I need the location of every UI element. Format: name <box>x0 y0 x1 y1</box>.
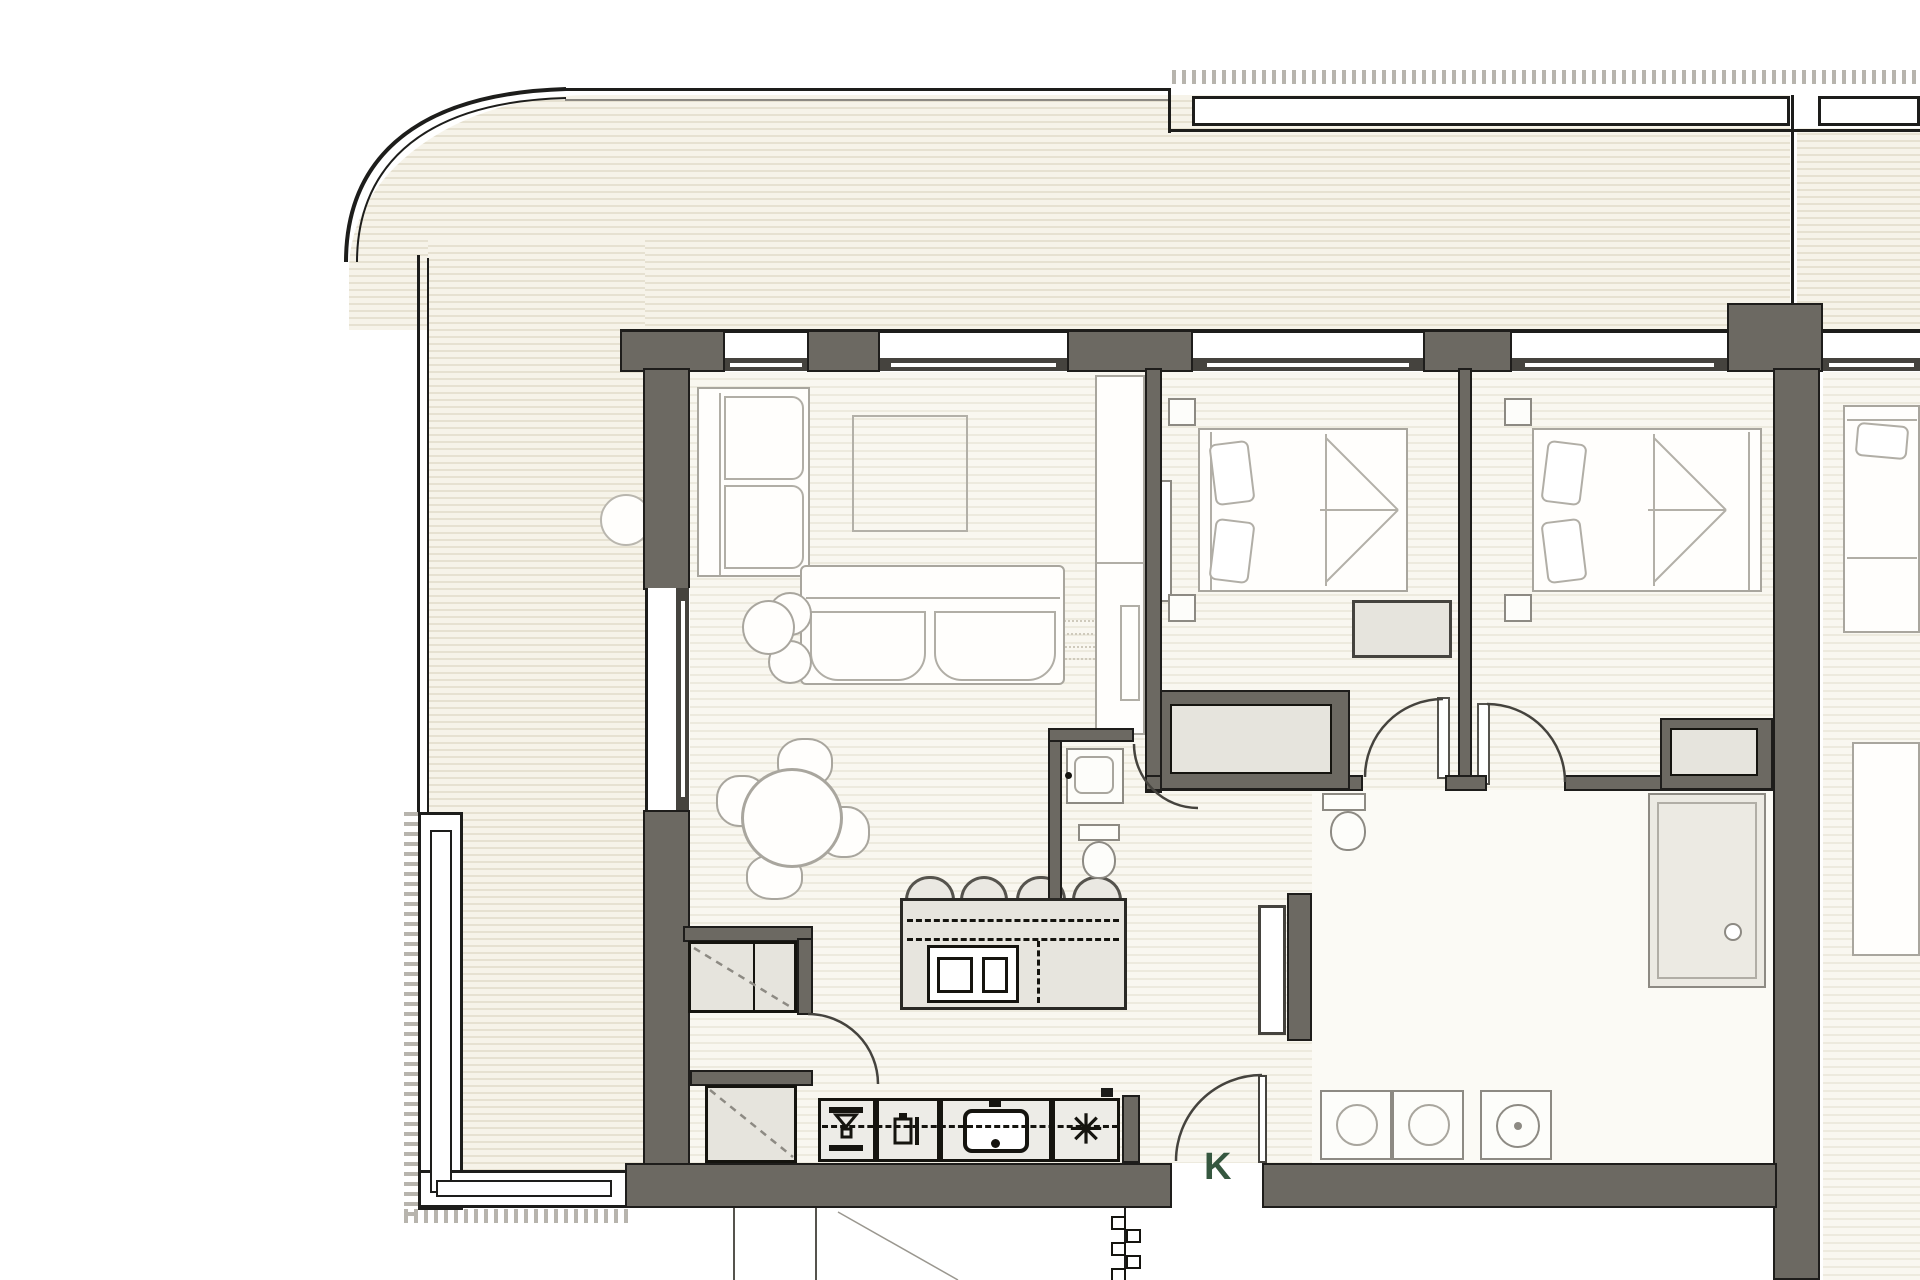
vanity-sink <box>1392 1090 1464 1160</box>
appliance-coffee-machine <box>818 1098 876 1162</box>
window-sill-line <box>681 601 685 796</box>
vanity-bowl <box>1336 1104 1378 1146</box>
railing-hatch-left <box>404 812 418 1222</box>
cabinet-panel <box>1120 605 1140 701</box>
washer-dot <box>1514 1122 1522 1130</box>
wall-pier-3 <box>1067 330 1193 372</box>
wall-pier-corner <box>620 330 725 372</box>
toilet2-tank <box>1322 793 1366 811</box>
balcony-divider <box>1791 95 1794 333</box>
railing-band-neighbor <box>1818 96 1920 126</box>
bottom-wall-right <box>1262 1163 1777 1208</box>
railing-panel-left-inner <box>430 830 452 1193</box>
window-1 <box>725 330 807 372</box>
wardrobe-bedroom1 <box>1160 690 1350 790</box>
nightstand <box>1168 594 1196 622</box>
vanity-sink <box>1320 1090 1392 1160</box>
neighbor-balcony-floor <box>1797 128 1920 330</box>
bottom-wall-left <box>625 1163 1172 1208</box>
neighbor-headboard <box>1847 419 1917 421</box>
window-sill-line <box>891 363 1056 367</box>
window-3 <box>1193 330 1423 372</box>
cooktop <box>927 945 1019 1003</box>
shower-tray <box>1657 802 1757 979</box>
island-dash-line <box>907 938 1119 941</box>
balcony-edge-line <box>1168 129 1920 132</box>
side-table <box>742 600 795 655</box>
wall-pier-4 <box>1423 330 1512 372</box>
toilet-tank <box>1078 824 1120 841</box>
section-marker-square <box>1111 1242 1126 1256</box>
unit-separation-wall <box>1773 368 1820 1280</box>
sofa-seat-cushion <box>934 611 1056 681</box>
loveseat-cushion <box>724 396 804 480</box>
door-leaf-bedroom2 <box>1477 703 1490 785</box>
sink-drain <box>991 1139 1000 1148</box>
window-2 <box>880 330 1067 372</box>
living-rug <box>852 415 968 532</box>
wall-between-bedrooms <box>1458 368 1472 788</box>
cabinet-divider <box>1097 562 1143 564</box>
toilet-bowl <box>1082 841 1116 879</box>
cooktop-zone <box>937 957 973 993</box>
sofa-seat-cushion <box>810 611 926 681</box>
storage-right-wall <box>797 938 813 1015</box>
pillow <box>1208 440 1255 506</box>
appliance-kettle <box>876 1098 940 1162</box>
sofa <box>800 565 1065 685</box>
washbasin <box>1066 748 1124 804</box>
coffee-machine-icon <box>821 1101 873 1159</box>
window-left-wall <box>645 588 690 810</box>
railing-top-inner-line <box>565 99 1168 101</box>
corridor-bath-wall <box>1287 893 1312 1041</box>
island-dash-line <box>907 919 1119 922</box>
exterior-line <box>815 1207 817 1280</box>
vanity-bowl <box>1408 1104 1450 1146</box>
window-sill-line <box>1525 363 1714 367</box>
storage-closet-1 <box>688 941 797 1013</box>
appliance-freezer: ✳ <box>1052 1098 1120 1162</box>
exterior-diagonal-line <box>838 1212 958 1280</box>
storage-mid-wall <box>690 1070 813 1086</box>
exterior-line <box>733 1207 735 1280</box>
shower <box>1648 793 1766 988</box>
storage-closet-2 <box>705 1085 797 1163</box>
washing-machine <box>1480 1090 1552 1160</box>
wall-pier-unit <box>1727 303 1823 372</box>
kettle-icon <box>879 1101 937 1159</box>
loveseat <box>697 387 810 577</box>
island-dash-line <box>1037 941 1040 1003</box>
counter-end-wall <box>1122 1095 1140 1163</box>
window-neighbor <box>1823 330 1920 372</box>
basin-tap <box>1065 772 1072 779</box>
shower-drain <box>1724 923 1742 941</box>
dresser <box>1352 600 1452 658</box>
left-wall-lower <box>643 810 690 1170</box>
floor-plan-canvas: ✳ <box>0 0 1920 1280</box>
sliding-panel-bathroom <box>1258 905 1286 1035</box>
counter-tick <box>1101 1088 1113 1097</box>
railing-hatch-bottom <box>404 1209 630 1223</box>
appliance-sink <box>940 1098 1052 1162</box>
door-leaf-bedroom1 <box>1437 697 1450 779</box>
pillow <box>1540 518 1587 584</box>
headboard-line <box>1748 432 1750 590</box>
snowflake-icon: ✳ <box>1069 1108 1103 1152</box>
window-4 <box>1512 330 1727 372</box>
railing-hatch-top <box>1172 70 1920 84</box>
neighbor-blanket-line <box>1847 557 1917 559</box>
tv-cabinet <box>1095 375 1145 735</box>
loveseat-back-line <box>719 393 721 575</box>
window-sill-line <box>1207 363 1409 367</box>
section-marker-square <box>1111 1216 1126 1230</box>
wall-pier-2 <box>807 330 880 372</box>
bedroom-walls-gap-segment <box>1445 775 1487 791</box>
nightstand <box>1504 594 1532 622</box>
railing-left-outer <box>417 255 420 815</box>
section-marker-square <box>1126 1255 1141 1269</box>
pillow <box>1208 518 1255 584</box>
wc-left-wall <box>1048 740 1062 900</box>
window-sill-line <box>730 363 802 367</box>
pillow <box>1540 440 1587 506</box>
storage-top-wall <box>683 926 813 942</box>
basin-bowl <box>1074 756 1114 794</box>
railing-band-main <box>1192 96 1790 126</box>
kitchen-island <box>900 898 1127 1010</box>
counter-dash-line <box>822 1125 1118 1128</box>
pillow <box>1855 422 1910 460</box>
loveseat-cushion <box>724 485 804 569</box>
railing-left-inner <box>427 258 429 815</box>
wardrobe-interior <box>1670 728 1758 776</box>
nightstand <box>1504 398 1532 426</box>
railing-panel-bottom-inner <box>436 1180 612 1197</box>
wardrobe-interior <box>1170 704 1332 774</box>
railing-step <box>1168 88 1171 133</box>
entrance-label: K <box>1204 1146 1232 1189</box>
wardrobe-bedroom2 <box>1660 718 1773 790</box>
sink-faucet <box>989 1099 1001 1107</box>
left-wall-upper <box>643 368 690 590</box>
window-sill-line <box>1829 363 1914 367</box>
dining-table <box>741 768 843 868</box>
neighbor-furniture <box>1852 742 1920 956</box>
cooktop-zone <box>982 957 1008 993</box>
nightstand <box>1168 398 1196 426</box>
sofa-back-line <box>806 597 1060 599</box>
section-marker-square <box>1126 1229 1141 1243</box>
toilet2-bowl <box>1330 811 1366 851</box>
closet-divider <box>753 944 755 1010</box>
section-marker-square <box>1111 1268 1126 1280</box>
door-leaf-entrance <box>1258 1075 1267 1163</box>
railing-top-line <box>565 88 1170 91</box>
